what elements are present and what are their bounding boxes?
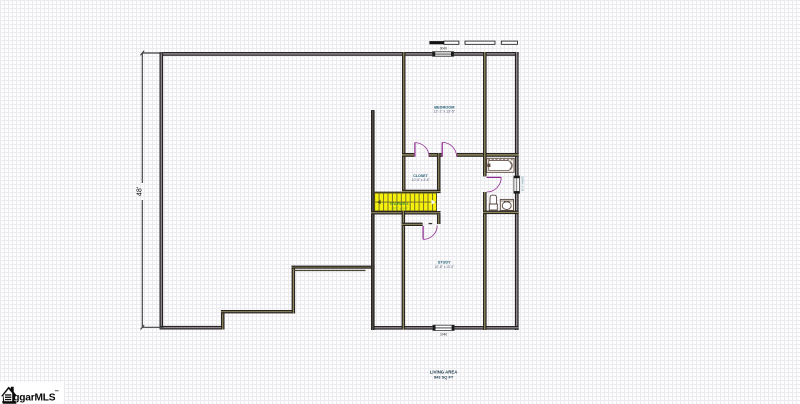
svg-text:843 SQ FT: 843 SQ FT [434, 374, 454, 379]
svg-text:10'-5" x 3'-6": 10'-5" x 3'-6" [412, 178, 430, 182]
svg-text:12'-1" x 13'-5": 12'-1" x 13'-5" [434, 109, 456, 113]
svg-text:48': 48' [136, 187, 143, 196]
svg-text:3046: 3046 [440, 46, 447, 50]
svg-text:STAIRWELL: STAIRWELL [390, 202, 409, 206]
svg-text:3046: 3046 [440, 332, 447, 336]
svg-text:13'-3" x 3'-8": 13'-3" x 3'-8" [391, 206, 408, 210]
svg-text:ggarMLS: ggarMLS [13, 393, 56, 404]
svg-text:™: ™ [54, 389, 59, 394]
svg-text:3046 S.H.: 3046 S.H. [521, 176, 525, 193]
svg-text:10'-8" x 13'-0": 10'-8" x 13'-0" [435, 265, 455, 269]
